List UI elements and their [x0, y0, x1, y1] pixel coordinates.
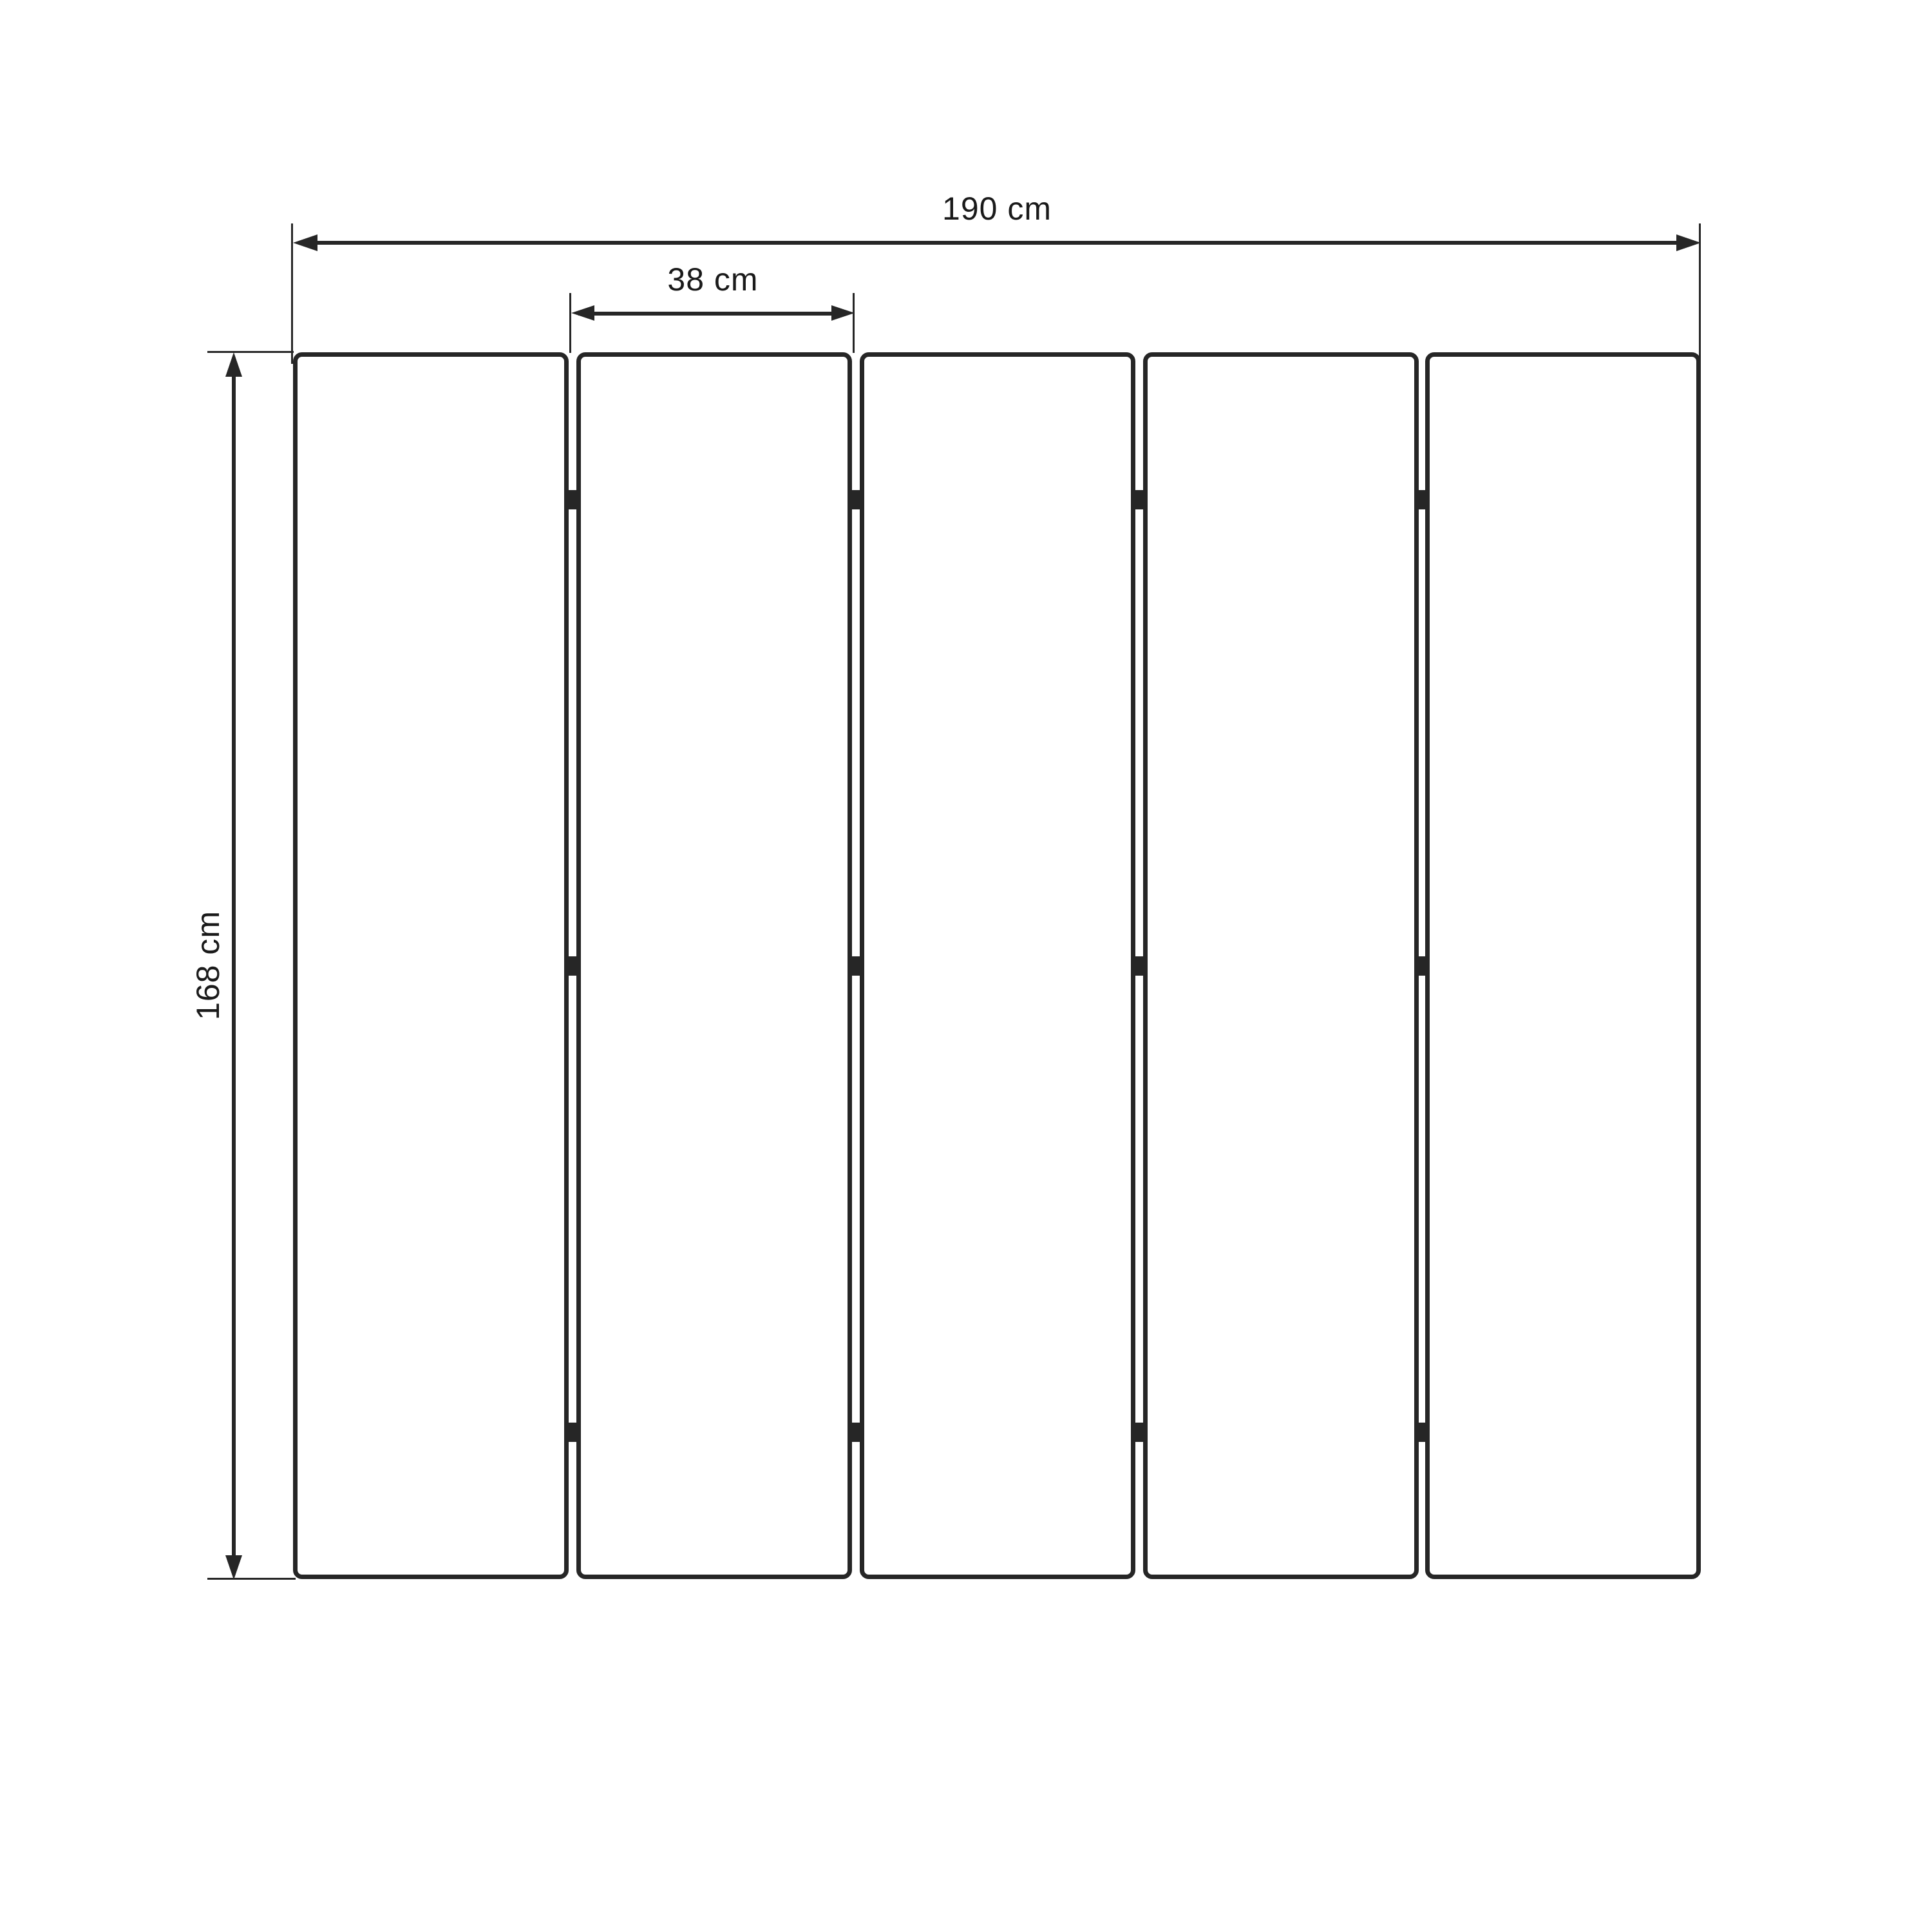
- hinge: [1417, 490, 1428, 509]
- dimension-line-total-width: [301, 241, 1692, 245]
- dimension-label-panel-width: 38 cm: [584, 260, 842, 299]
- extension-line-panel-width-left: [569, 293, 571, 353]
- hinge: [1134, 490, 1144, 509]
- panel-5: [1425, 352, 1701, 1579]
- hinge: [1134, 956, 1144, 976]
- arrowhead-down-icon: [225, 1555, 242, 1580]
- hinge: [851, 1423, 861, 1442]
- hinge: [567, 490, 578, 509]
- panel-4: [1143, 352, 1419, 1579]
- dimension-label-total-width: 190 cm: [868, 189, 1126, 228]
- hinge: [1134, 1423, 1144, 1442]
- dimension-line-height: [232, 361, 236, 1570]
- extension-line-height-top: [207, 351, 294, 353]
- arrowhead-up-icon: [225, 352, 242, 377]
- extension-line-height-bottom: [207, 1578, 296, 1580]
- hinge: [567, 1423, 578, 1442]
- dimension-line-panel-width: [578, 312, 846, 316]
- hinge: [1417, 1423, 1428, 1442]
- arrowhead-left-icon: [571, 305, 594, 321]
- arrowhead-left-icon: [293, 234, 317, 251]
- dimension-label-height: 168 cm: [189, 837, 227, 1094]
- extension-line-panel-width-right: [853, 293, 855, 353]
- arrowhead-right-icon: [831, 305, 855, 321]
- panel-2: [576, 352, 852, 1579]
- hinge: [567, 956, 578, 976]
- hinge: [1417, 956, 1428, 976]
- hinge: [851, 956, 861, 976]
- panel-1: [293, 352, 569, 1579]
- panel-3: [860, 352, 1135, 1579]
- hinge: [851, 490, 861, 509]
- technical-drawing-canvas: 190 cm 38 cm 168 cm: [0, 0, 1932, 1932]
- arrowhead-right-icon: [1676, 234, 1701, 251]
